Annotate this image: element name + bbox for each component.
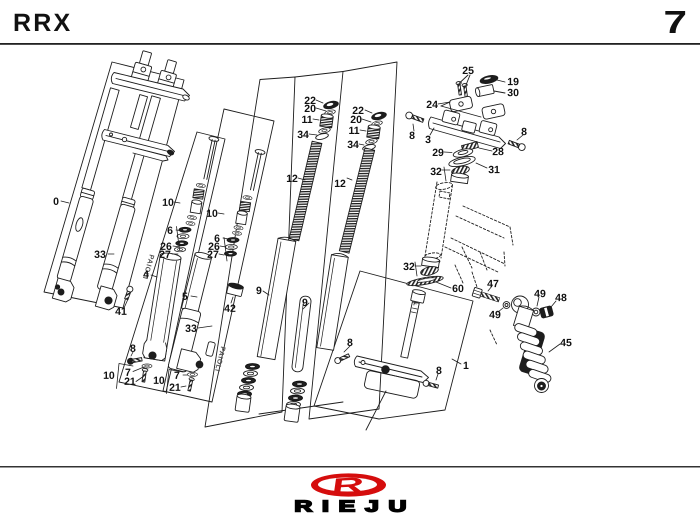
- svg-text:30: 30: [507, 87, 519, 99]
- svg-text:31: 31: [488, 164, 500, 176]
- svg-text:34: 34: [347, 139, 359, 151]
- svg-text:RIEJU: RIEJU: [294, 499, 416, 514]
- svg-text:12: 12: [286, 173, 298, 185]
- svg-text:27: 27: [207, 249, 219, 261]
- svg-text:42: 42: [224, 303, 236, 315]
- svg-text:10: 10: [162, 197, 174, 209]
- svg-text:47: 47: [487, 278, 499, 290]
- svg-text:21: 21: [169, 382, 181, 394]
- svg-text:28: 28: [492, 146, 504, 158]
- svg-text:49: 49: [489, 309, 501, 321]
- svg-text:33: 33: [185, 323, 197, 335]
- svg-text:10: 10: [153, 375, 165, 387]
- svg-text:29: 29: [432, 147, 444, 159]
- svg-text:10: 10: [206, 208, 218, 220]
- svg-text:7: 7: [664, 4, 687, 40]
- svg-text:8: 8: [130, 343, 136, 355]
- svg-text:10: 10: [103, 370, 115, 382]
- svg-text:9: 9: [256, 285, 262, 297]
- svg-text:48: 48: [555, 292, 567, 304]
- svg-text:60: 60: [452, 283, 464, 295]
- svg-text:34: 34: [297, 129, 309, 141]
- svg-text:8: 8: [409, 130, 415, 142]
- svg-text:4: 4: [143, 269, 149, 281]
- svg-text:RRX: RRX: [13, 9, 72, 37]
- svg-text:8: 8: [521, 126, 527, 138]
- svg-text:12: 12: [334, 178, 346, 190]
- svg-text:24: 24: [426, 99, 438, 111]
- svg-text:32: 32: [403, 261, 415, 273]
- svg-text:8: 8: [436, 365, 442, 377]
- svg-text:27: 27: [159, 249, 171, 261]
- svg-text:11: 11: [349, 125, 360, 137]
- svg-text:41: 41: [115, 306, 127, 318]
- svg-text:49: 49: [534, 288, 546, 300]
- svg-text:33: 33: [94, 249, 106, 261]
- svg-text:32: 32: [430, 166, 442, 178]
- svg-text:5: 5: [182, 291, 188, 303]
- svg-text:8: 8: [347, 337, 353, 349]
- svg-text:1: 1: [463, 360, 469, 372]
- svg-text:9: 9: [302, 297, 308, 309]
- svg-text:3: 3: [425, 134, 431, 146]
- svg-text:7: 7: [174, 370, 180, 382]
- svg-text:45: 45: [560, 337, 572, 349]
- svg-text:11: 11: [302, 114, 313, 126]
- svg-text:0: 0: [53, 196, 59, 208]
- svg-text:25: 25: [462, 65, 474, 77]
- svg-text:21: 21: [124, 376, 136, 388]
- svg-text:6: 6: [167, 225, 173, 237]
